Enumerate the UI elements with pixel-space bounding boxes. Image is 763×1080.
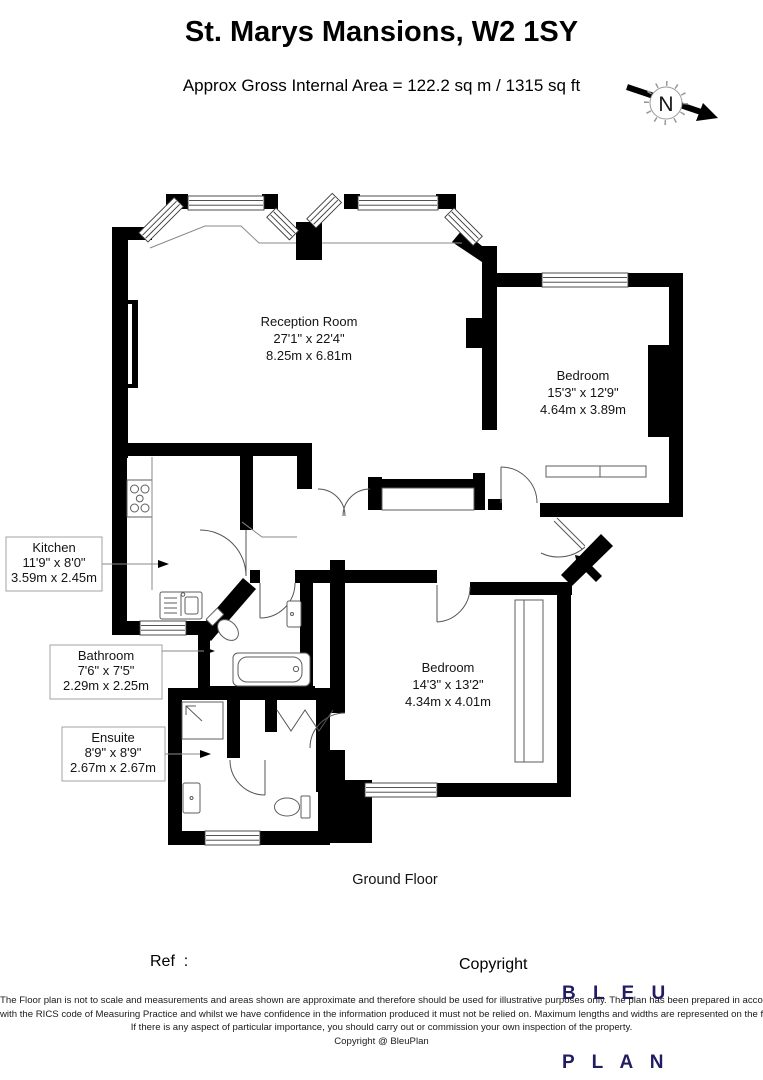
bay-window-diagonal-3 xyxy=(307,193,342,228)
hall-cupboard xyxy=(382,488,474,510)
ensuite-window xyxy=(205,831,260,845)
svg-text:3.59m x 2.45m: 3.59m x 2.45m xyxy=(11,570,97,585)
ensuite-sink-icon xyxy=(183,783,200,813)
svg-text:Bedroom: Bedroom xyxy=(422,660,475,675)
svg-text:Ensuite: Ensuite xyxy=(91,730,134,745)
bay-window-right-horizontal xyxy=(358,196,438,210)
svg-text:2.29m x 2.25m: 2.29m x 2.25m xyxy=(63,678,149,693)
svg-text:Reception Room: Reception Room xyxy=(261,314,358,329)
bedroom2-wardrobe xyxy=(515,600,543,762)
kitchen-door-arc xyxy=(200,530,246,576)
svg-text:4.34m x 4.01m: 4.34m x 4.01m xyxy=(405,694,491,709)
kitchen-sink-icon xyxy=(160,592,202,619)
bedroom2-door-arc xyxy=(437,587,470,622)
ensuite-door-arc xyxy=(230,760,265,795)
stove-icon xyxy=(127,480,152,517)
svg-text:8'9" x 8'9": 8'9" x 8'9" xyxy=(85,745,142,760)
svg-text:11'9" x 8'0": 11'9" x 8'0" xyxy=(22,555,85,570)
svg-text:7'6" x 7'5": 7'6" x 7'5" xyxy=(78,663,135,678)
floorplan-page: St. Marys Mansions, W2 1SY Approx Gross … xyxy=(0,0,763,1080)
floorplan-drawing: Reception Room 27'1" x 22'4" 8.25m x 6.8… xyxy=(0,0,763,1080)
bedroom1-wardrobe xyxy=(546,466,646,477)
copyright-label: Copyright xyxy=(459,956,527,974)
entrance-door-leaf xyxy=(554,521,582,549)
compass-north-label: N xyxy=(658,93,673,116)
bedroom1-door-arc xyxy=(501,467,537,503)
reception-room-label: Reception Room 27'1" x 22'4" 8.25m x 6.8… xyxy=(261,314,358,363)
bathtub-icon xyxy=(233,653,310,686)
svg-text:Kitchen: Kitchen xyxy=(32,540,75,555)
svg-text:15'3" x 12'9": 15'3" x 12'9" xyxy=(547,385,619,400)
kitchen-window xyxy=(140,621,186,635)
ensuite-toilet-icon xyxy=(275,796,311,818)
bay-window-left-horizontal xyxy=(188,196,264,210)
floor-label: Ground Floor xyxy=(352,872,438,888)
entrance-door-arc xyxy=(541,547,585,557)
svg-text:8.25m x 6.81m: 8.25m x 6.81m xyxy=(266,348,352,363)
disclaimer-line: with the RICS code of Measuring Practice… xyxy=(0,1008,763,1022)
svg-text:2.67m x 2.67m: 2.67m x 2.67m xyxy=(70,760,156,775)
compass-icon: N xyxy=(627,84,718,123)
ref-label: Ref : xyxy=(150,953,188,971)
svg-text:27'1" x 22'4": 27'1" x 22'4" xyxy=(273,331,345,346)
disclaimer-line: Copyright @ BleuPlan xyxy=(0,1035,763,1049)
svg-text:14'3" x 13'2": 14'3" x 13'2" xyxy=(412,677,484,692)
bay-window-diagonal-1 xyxy=(139,197,184,242)
svg-text:4.64m x 3.89m: 4.64m x 3.89m xyxy=(540,402,626,417)
bedroom1-label: Bedroom 15'3" x 12'9" 4.64m x 3.89m xyxy=(540,368,626,417)
bedroom2-window xyxy=(365,783,437,797)
windows xyxy=(139,193,628,845)
disclaimer: The Floor plan is not to scale and measu… xyxy=(0,994,763,1048)
disclaimer-line: The Floor plan is not to scale and measu… xyxy=(0,994,763,1008)
bedroom1-window xyxy=(542,273,628,287)
svg-text:Bedroom: Bedroom xyxy=(557,368,610,383)
shower-icon xyxy=(182,702,223,739)
bathroom-sink-icon xyxy=(287,601,301,627)
svg-text:Bathroom: Bathroom xyxy=(78,648,134,663)
entrance-door-leaf xyxy=(557,518,585,546)
walls xyxy=(112,194,683,845)
reception-double-door-arc xyxy=(343,489,370,516)
bay-window-diagonal-2 xyxy=(267,208,299,240)
disclaimer-line: If there is any aspect of particular imp… xyxy=(0,1021,763,1035)
dimension-boxes: Kitchen 11'9" x 8'0" 3.59m x 2.45m Bathr… xyxy=(6,537,215,781)
bedroom2-label: Bedroom 14'3" x 13'2" 4.34m x 4.01m xyxy=(405,660,491,709)
reception-double-door-arc xyxy=(318,489,345,516)
logo-line-2: P L A N xyxy=(562,1051,671,1074)
kitchen-label-box: Kitchen 11'9" x 8'0" 3.59m x 2.45m xyxy=(6,537,169,591)
